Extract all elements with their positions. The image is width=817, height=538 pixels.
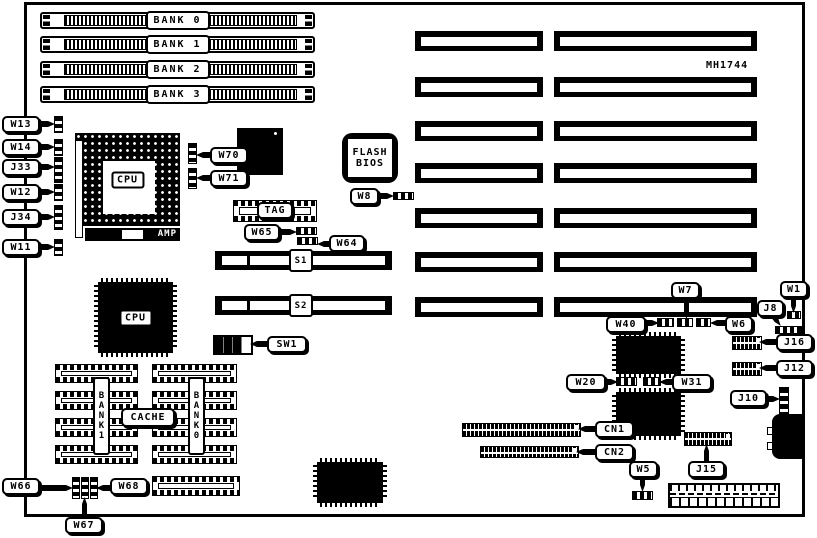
jumper-w14: [54, 139, 63, 156]
flash-bios-line2: BIOS: [356, 158, 384, 170]
label-w6: W6: [725, 316, 753, 333]
label-w67: W67: [65, 517, 103, 534]
tag-label: TAG: [257, 202, 293, 219]
cpu-socket-label: CPU: [111, 171, 144, 188]
header-j16: [732, 336, 762, 350]
dip-switch-sw1: [213, 335, 253, 355]
label-w31: W31: [672, 374, 712, 391]
expansion-slot: [554, 121, 757, 141]
slot-s2: S2: [215, 296, 392, 315]
motherboard-diagram: MH1744 BANK 0 BANK 1 BANK 2 BANK 3 S1: [0, 0, 817, 538]
simm-clip: [305, 89, 312, 100]
cpu-chip: CPU: [98, 282, 173, 353]
jumper-w5: [632, 491, 653, 500]
jumper-w31: [643, 377, 661, 386]
simm-slot-bank1: BANK 1: [40, 36, 315, 53]
cpu-socket: CPU: [75, 133, 180, 226]
jumper-w71: [188, 168, 197, 189]
expansion-slot: [415, 163, 543, 183]
chipset-chip-1: [616, 336, 681, 374]
jumper-w12: [54, 184, 63, 201]
connector-pad: [767, 427, 773, 435]
label-w7: W7: [671, 282, 700, 299]
amp-bar: AMP: [85, 228, 180, 241]
slot-segment: [312, 256, 385, 265]
slot-segment: [250, 256, 292, 265]
slot-segment: [250, 301, 292, 310]
simm-clip: [43, 89, 50, 100]
expansion-slot: [415, 121, 543, 141]
label-cn2: CN2: [595, 444, 634, 461]
simm-clip: [43, 39, 50, 50]
jumper-w8: [393, 192, 414, 200]
label-j15: J15: [688, 461, 725, 478]
label-w12: W12: [2, 184, 40, 201]
label-w13: W13: [2, 116, 40, 133]
label-j12: J12: [776, 360, 813, 377]
qfp-pins: [612, 339, 616, 371]
expansion-slot: [554, 163, 757, 183]
simm-clip: [305, 15, 312, 26]
expansion-slot: [415, 208, 543, 228]
simm-clip: [43, 64, 50, 75]
label-w64: W64: [329, 235, 365, 252]
cache-label: CACHE: [121, 408, 175, 427]
qfp-pins: [94, 285, 98, 350]
expansion-slot: [415, 297, 543, 317]
header-cn1: [462, 423, 581, 437]
label-w65: W65: [244, 224, 280, 241]
jumper-j33: [54, 157, 63, 183]
label-w70: W70: [210, 147, 248, 164]
slot-s1: S1: [215, 251, 392, 270]
simm-clip: [305, 64, 312, 75]
header-j8: [775, 326, 802, 334]
qfp-pins: [313, 465, 317, 500]
jumper-w7: [677, 318, 693, 327]
expansion-slot: [415, 77, 543, 97]
qfp-pins: [681, 395, 685, 433]
bank-label: BANK 2: [146, 60, 210, 79]
expansion-slot: [554, 208, 757, 228]
expansion-slot: [415, 31, 543, 51]
label-w11: W11: [2, 239, 40, 256]
callout-lead: [38, 485, 73, 491]
header-j12: [732, 362, 762, 376]
header-j10: [779, 387, 789, 418]
label-j34: J34: [2, 209, 40, 226]
ic-chip: [317, 462, 383, 503]
label-j33: J33: [2, 159, 40, 176]
label-w8: W8: [350, 188, 379, 205]
simm-clip: [305, 39, 312, 50]
expansion-slot: [554, 31, 757, 51]
expansion-slot: [554, 297, 757, 317]
label-w5: W5: [629, 461, 658, 478]
header-j15: [684, 432, 732, 446]
label-w1: W1: [780, 281, 808, 298]
slot-segment: [312, 301, 385, 310]
slot-s1-label: S1: [289, 249, 313, 272]
cpu-chip-label: CPU: [119, 309, 152, 326]
jumper-w64: [297, 237, 318, 245]
simm-slot-bank2: BANK 2: [40, 61, 315, 78]
jumper-w65: [296, 227, 317, 235]
jumper-w1: [787, 311, 801, 319]
qfp-pins: [681, 339, 685, 371]
zif-lever: [75, 140, 83, 238]
cache-bank1-label: BANK1: [93, 377, 110, 455]
keyboard-connector: [772, 414, 804, 459]
label-j16: J16: [776, 334, 813, 351]
label-w71: W71: [210, 170, 248, 187]
jumper-w70: [188, 143, 197, 164]
label-sw1: SW1: [267, 336, 307, 353]
expansion-slot: [415, 252, 543, 272]
label-w20: W20: [566, 374, 606, 391]
slot-s2-label: S2: [289, 294, 313, 317]
label-cn1: CN1: [595, 421, 634, 438]
cache-socket: [152, 476, 240, 496]
qfp-pins: [383, 465, 387, 500]
jumper-j34: [54, 205, 63, 230]
simm-clip: [43, 15, 50, 26]
flash-bios-chip: FLASH BIOS: [342, 133, 398, 183]
amp-notch: [122, 230, 143, 239]
jumper-w20: [616, 377, 637, 386]
flash-bios-label: FLASH BIOS: [348, 139, 392, 177]
jumper-w11: [54, 239, 63, 256]
bank-label: BANK 0: [146, 11, 210, 30]
expansion-slot: [554, 77, 757, 97]
simm-slot-bank3: BANK 3: [40, 86, 315, 103]
jumper-w40: [657, 318, 674, 327]
power-connector: [668, 483, 780, 508]
label-w14: W14: [2, 139, 40, 156]
jumper-w13: [54, 116, 63, 133]
connector-pad: [767, 442, 773, 450]
expansion-slot: [554, 252, 757, 272]
jumper-w66: [72, 477, 80, 499]
amp-brand-text: AMP: [158, 229, 177, 239]
label-j10: J10: [730, 390, 767, 407]
simm-slot-bank0: BANK 0: [40, 12, 315, 29]
qfp-pins: [173, 285, 177, 350]
jumper-w67: [81, 477, 89, 499]
label-w40: W40: [606, 316, 646, 333]
slot-segment: [222, 301, 247, 310]
slot-segment: [222, 256, 247, 265]
label-j8: J8: [757, 300, 784, 317]
board-model-text: MH1744: [706, 60, 748, 71]
bank-label: BANK 1: [146, 35, 210, 54]
jumper-w6: [696, 318, 711, 327]
cache-bank0-label: BANK0: [188, 377, 205, 455]
label-w66: W66: [2, 478, 40, 495]
label-w68: W68: [110, 478, 148, 495]
bank-label: BANK 3: [146, 85, 210, 104]
flash-bios-line1: FLASH: [352, 147, 387, 159]
header-cn2: [480, 446, 579, 458]
